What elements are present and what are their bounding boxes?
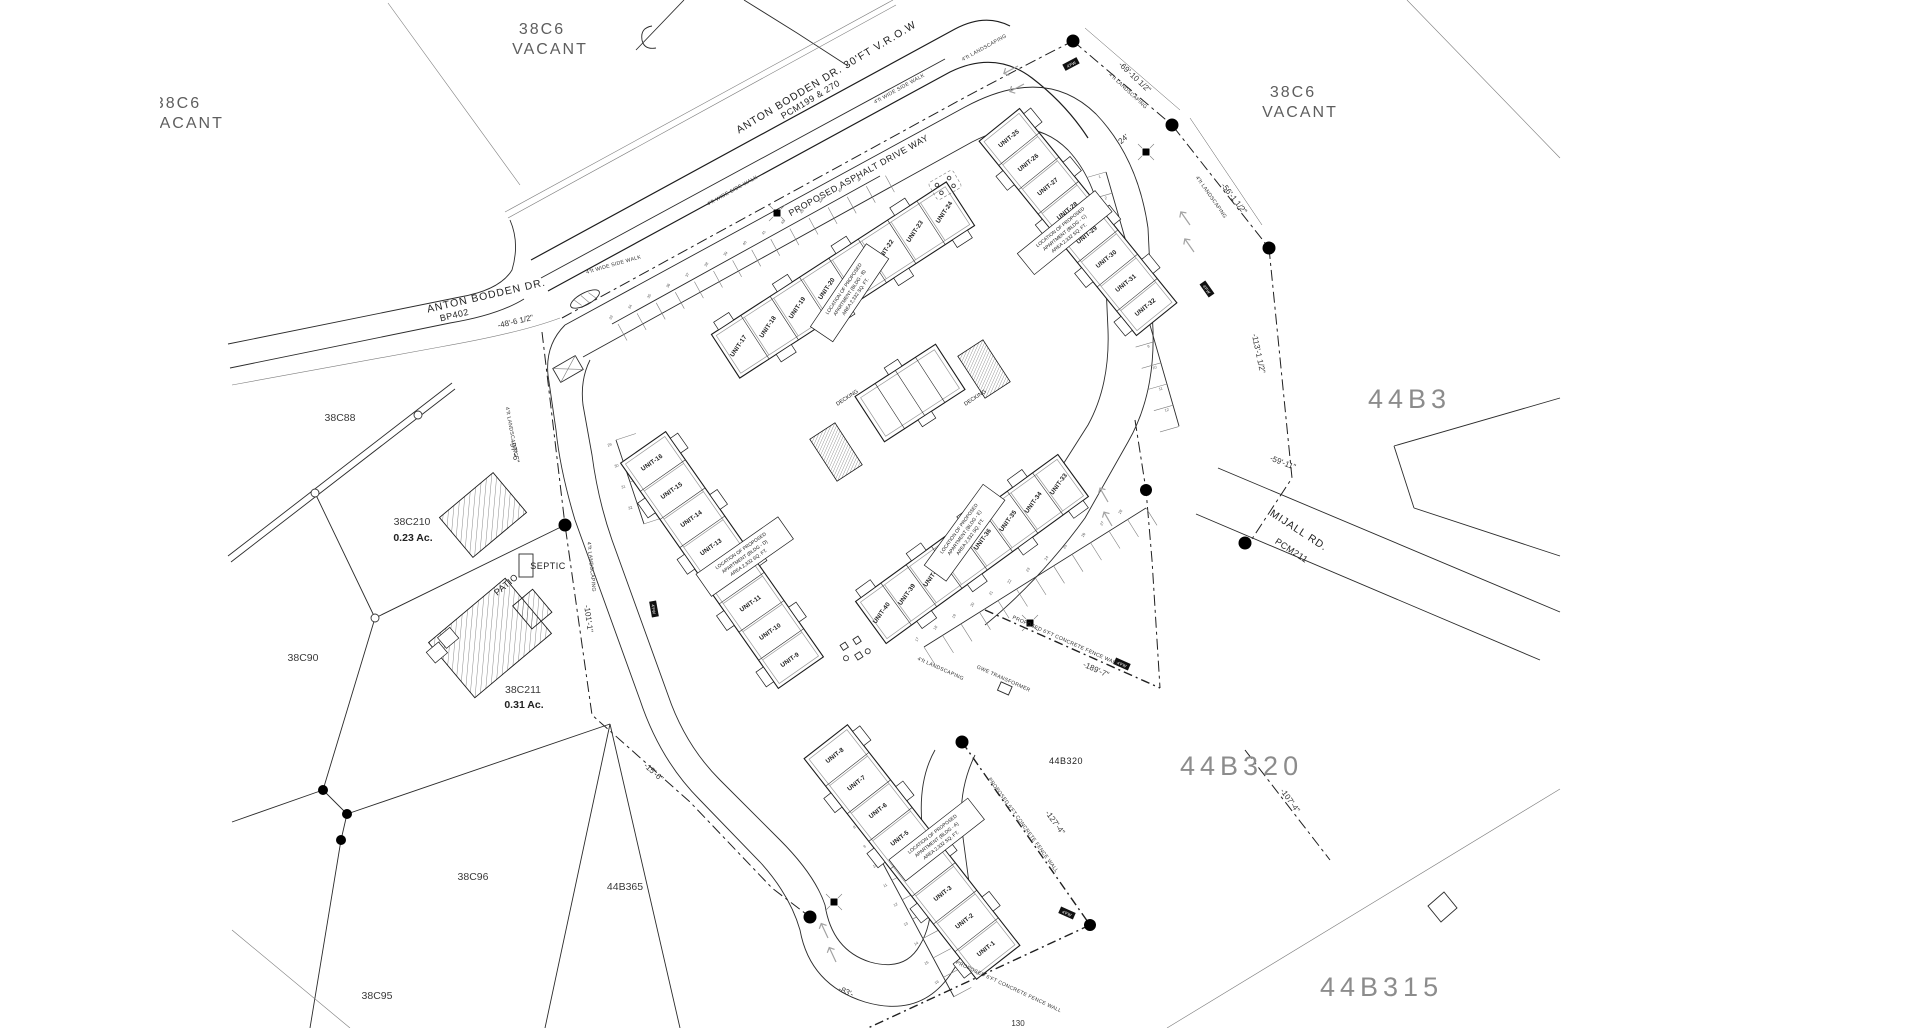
- parcel-label-44b365: 44B365: [607, 881, 643, 893]
- parking-stall-line: [1146, 508, 1157, 526]
- parking-stall-line: [809, 218, 818, 235]
- parcel-id: 38C6: [155, 95, 201, 112]
- stall-number: 15: [924, 960, 930, 966]
- lot-line: [232, 724, 610, 1028]
- page-clip-mask: [0, 0, 160, 1028]
- site-plan-svg: 38C6 VACANT: [0, 0, 1920, 1028]
- transformer: GWE TRANSFORMER: [976, 664, 1032, 695]
- parking-stall-line: [1109, 531, 1120, 549]
- parking-stall-line: [1160, 426, 1179, 432]
- deck-hatch: [810, 423, 862, 481]
- mijall-edge: [1218, 468, 1560, 612]
- stall-number: 26: [1081, 532, 1087, 538]
- stall-number: 25: [1062, 544, 1068, 550]
- parking-stall-line: [943, 635, 954, 653]
- light-pole-icon: [1138, 144, 1154, 160]
- play-dot: [947, 176, 952, 181]
- stall-number: 28: [1118, 509, 1124, 515]
- fence-wall-label: PROPOSED 6'FT CONCRETE FENCE WALL: [1011, 615, 1119, 668]
- lot-line: [388, 3, 520, 185]
- parcel-label-38c88: 38C88: [325, 412, 356, 424]
- dim-48: -48'-6 1/2": [497, 313, 535, 330]
- chair: [843, 655, 850, 662]
- landscaping-label: 4'ft LANDSCAPING: [961, 33, 1008, 63]
- dim-97: -97'-6": [508, 439, 522, 464]
- stall-number: 13: [903, 922, 909, 928]
- left-parcels-linework: [228, 383, 680, 1028]
- corner-marker: [414, 411, 422, 419]
- parking-stall-line: [1148, 384, 1167, 390]
- stall-number: 36: [666, 283, 672, 289]
- parcel-label-38c6-tr: 38C6: [1270, 84, 1316, 101]
- parking-stall-line: [1128, 519, 1139, 537]
- stall-number: 2: [1104, 196, 1107, 200]
- parcel-label-38c210: 38C210: [394, 516, 431, 528]
- stall-number: 35: [647, 293, 653, 299]
- stall-number: 39: [723, 251, 729, 257]
- stall-number: 12: [1164, 408, 1169, 413]
- stall-number: 11: [1158, 387, 1163, 392]
- parcel-label-44b320-big: 44B320: [1180, 751, 1303, 781]
- fence-wall-label: PROPOSED 6'FT CONCRETE FENCE WALL: [986, 777, 1059, 874]
- survey-monument: [1428, 892, 1457, 922]
- stall-number: 40: [742, 240, 748, 246]
- anton-edge-north: [228, 220, 516, 344]
- parking-stall-line: [675, 292, 684, 309]
- dim-127: -127'-4": [1043, 809, 1067, 837]
- stall-number: 34: [627, 304, 633, 310]
- dim-130: 130: [1011, 1019, 1025, 1028]
- parking-stall-line: [771, 239, 780, 256]
- parking-stall-line: [1035, 577, 1046, 595]
- shed-hatched: [439, 473, 526, 558]
- corner-marker: [311, 489, 319, 497]
- stall-number: 17: [914, 637, 920, 643]
- stall-number: 8: [853, 825, 857, 830]
- parking-stall-line: [752, 250, 761, 266]
- stall-number: 23: [1025, 567, 1031, 573]
- dim-107: -107'-4": [1278, 787, 1302, 815]
- lot-line: [545, 724, 680, 1028]
- lot-corner: [1394, 398, 1560, 556]
- lot-line: [1407, 0, 1560, 158]
- parcel-label-38c6-tl: 38C6: [519, 21, 565, 38]
- stall-number: 18: [933, 625, 939, 631]
- arrow-icon: [1097, 486, 1112, 504]
- fw-marker: 4'FW: [1200, 280, 1215, 297]
- parcel-label-44b320-small: 44B320: [1049, 756, 1083, 766]
- corner-marker: [371, 614, 379, 622]
- parcel-label-44b3: 44B3: [1368, 384, 1451, 414]
- transformer-label: GWE TRANSFORMER: [976, 664, 1032, 693]
- road-label-anton: ANTON BODDEN DR.: [426, 277, 547, 316]
- stall-number: 12: [893, 902, 899, 908]
- dim-15: -15'-6": [642, 761, 665, 783]
- stall-number: 14: [913, 941, 919, 947]
- fw-marker: 4'FW: [649, 601, 659, 618]
- parking-stall-line: [1136, 342, 1155, 348]
- stall-number: 19: [951, 613, 957, 619]
- landscaping-label: 4'ft LANDSCAPING: [585, 542, 596, 593]
- stall-number: 16: [934, 980, 940, 986]
- parcel-area-38c210: 0.23 Ac.: [393, 532, 432, 544]
- deck-west: [810, 423, 862, 481]
- parcel-label-38c95: 38C95: [362, 990, 393, 1002]
- clubhouse: [851, 338, 970, 449]
- site-plan-drawing: 38C6 VACANT: [0, 0, 1920, 1028]
- arrow-icon: [818, 922, 832, 940]
- stall-number: 9: [1147, 344, 1150, 348]
- stall-number: 21: [988, 590, 994, 596]
- parking-stall-line: [1091, 543, 1102, 561]
- dim-113: -113'-1 1/2": [1250, 333, 1267, 374]
- mijall-road: [1167, 398, 1560, 1028]
- parking-stall-line: [1072, 554, 1083, 572]
- stall-number: 38: [704, 262, 710, 268]
- fence-wall-a: [985, 610, 1160, 688]
- parking-stall-line: [714, 271, 723, 288]
- landscaping-label: 4'ft LANDSCAPING: [1194, 175, 1228, 220]
- parking-stall-line: [656, 303, 665, 320]
- play-dot: [951, 183, 956, 188]
- parking-stall-line: [980, 612, 991, 630]
- parcel-label-38c6-tl-status: VACANT: [512, 41, 588, 58]
- dim-189: -189'-7": [1082, 660, 1111, 679]
- stall-number: 41: [761, 230, 767, 236]
- boundary-se: [1135, 420, 1160, 688]
- fence-wall-label: PROPOSED 6'FT CONCRETE FENCE WALL: [955, 960, 1062, 1014]
- parcel-label-38c90: 38C90: [288, 652, 319, 664]
- dim-59: -59'-11": [1269, 454, 1297, 472]
- parking-stall-line: [961, 624, 972, 642]
- decking-label: DECKING: [963, 389, 987, 408]
- parking-stall-line: [866, 186, 875, 203]
- parking-stall-line: [733, 260, 742, 277]
- stall-number: 31: [621, 484, 626, 489]
- anton-edge-south: [230, 299, 524, 368]
- arrow-icon: [1182, 237, 1198, 255]
- parking-stall-line: [790, 229, 799, 246]
- table: [840, 642, 848, 650]
- table: [853, 636, 861, 644]
- parking-stall-line: [618, 324, 627, 341]
- parcel-label-38c6-tr-status: VACANT: [1262, 104, 1338, 121]
- lot-line: [232, 930, 350, 1028]
- stall-number: 22: [1007, 579, 1013, 585]
- parking-stall-line: [954, 987, 972, 996]
- anton-bodden-road: [228, 0, 1088, 385]
- stall-number: 42: [780, 219, 786, 225]
- stall-number: 24: [1044, 555, 1050, 561]
- parking-stall-line: [847, 197, 856, 214]
- loop-west-outer: [548, 325, 975, 1006]
- stall-number: 33: [608, 315, 614, 321]
- parking-stall-line: [933, 949, 951, 958]
- parking-stall-line: [694, 282, 703, 299]
- stall-number: 10: [1152, 365, 1157, 370]
- stall-number: 32: [628, 505, 633, 510]
- landscaping-label: 4'ft LANDSCAPING: [916, 656, 964, 682]
- parking-stall-line: [828, 207, 837, 224]
- dim-101: -101'-1": [582, 604, 595, 633]
- utility-structure: [553, 356, 584, 383]
- stall-number: 1: [1098, 175, 1101, 179]
- stall-number: 20: [970, 602, 976, 608]
- stall-number: 37: [685, 272, 691, 278]
- parking-stall-line: [1087, 172, 1106, 178]
- stall-number: 27: [1099, 521, 1105, 527]
- stall-number: 30: [614, 463, 619, 468]
- boundary-e: [1248, 248, 1292, 545]
- patio-furniture: [836, 633, 871, 667]
- mijall-edge: [1196, 514, 1540, 660]
- parcel-label-vacant-left: 38C6 VACANT: [0, 0, 224, 1028]
- parking-stall-line: [616, 434, 636, 441]
- parcel-label-38c96: 38C96: [458, 871, 489, 883]
- anton-row-south: [232, 318, 560, 385]
- parking-stall-line: [1054, 566, 1065, 584]
- parcel-label-38c211: 38C211: [505, 684, 541, 696]
- arrow-icon: [1178, 210, 1194, 228]
- chair: [864, 648, 871, 655]
- septic-label: SEPTIC: [530, 561, 566, 571]
- fw-marker: 4'FW: [1058, 907, 1075, 920]
- light-pole-icon: [826, 894, 842, 910]
- parcel-area-38c211: 0.31 Ac.: [504, 699, 543, 711]
- parking-stall-line: [637, 313, 646, 330]
- parcel-label-44b315: 44B315: [1320, 972, 1443, 1002]
- shed-38c210: [439, 473, 526, 558]
- stall-number: 9: [863, 844, 867, 849]
- sidewalk-label: 4'ft WIDE SIDE WALK: [586, 254, 643, 276]
- table: [855, 652, 863, 660]
- stall-number: 29: [607, 442, 612, 447]
- parking-stall-line: [998, 601, 1009, 619]
- stall-number: 11: [883, 883, 888, 888]
- fw-marker: 4'FW: [1062, 57, 1079, 71]
- sidewalk-label: 4'ft WIDE SIDE WALK: [706, 175, 759, 208]
- arrow-icon: [826, 946, 840, 964]
- building-e: [850, 447, 1093, 651]
